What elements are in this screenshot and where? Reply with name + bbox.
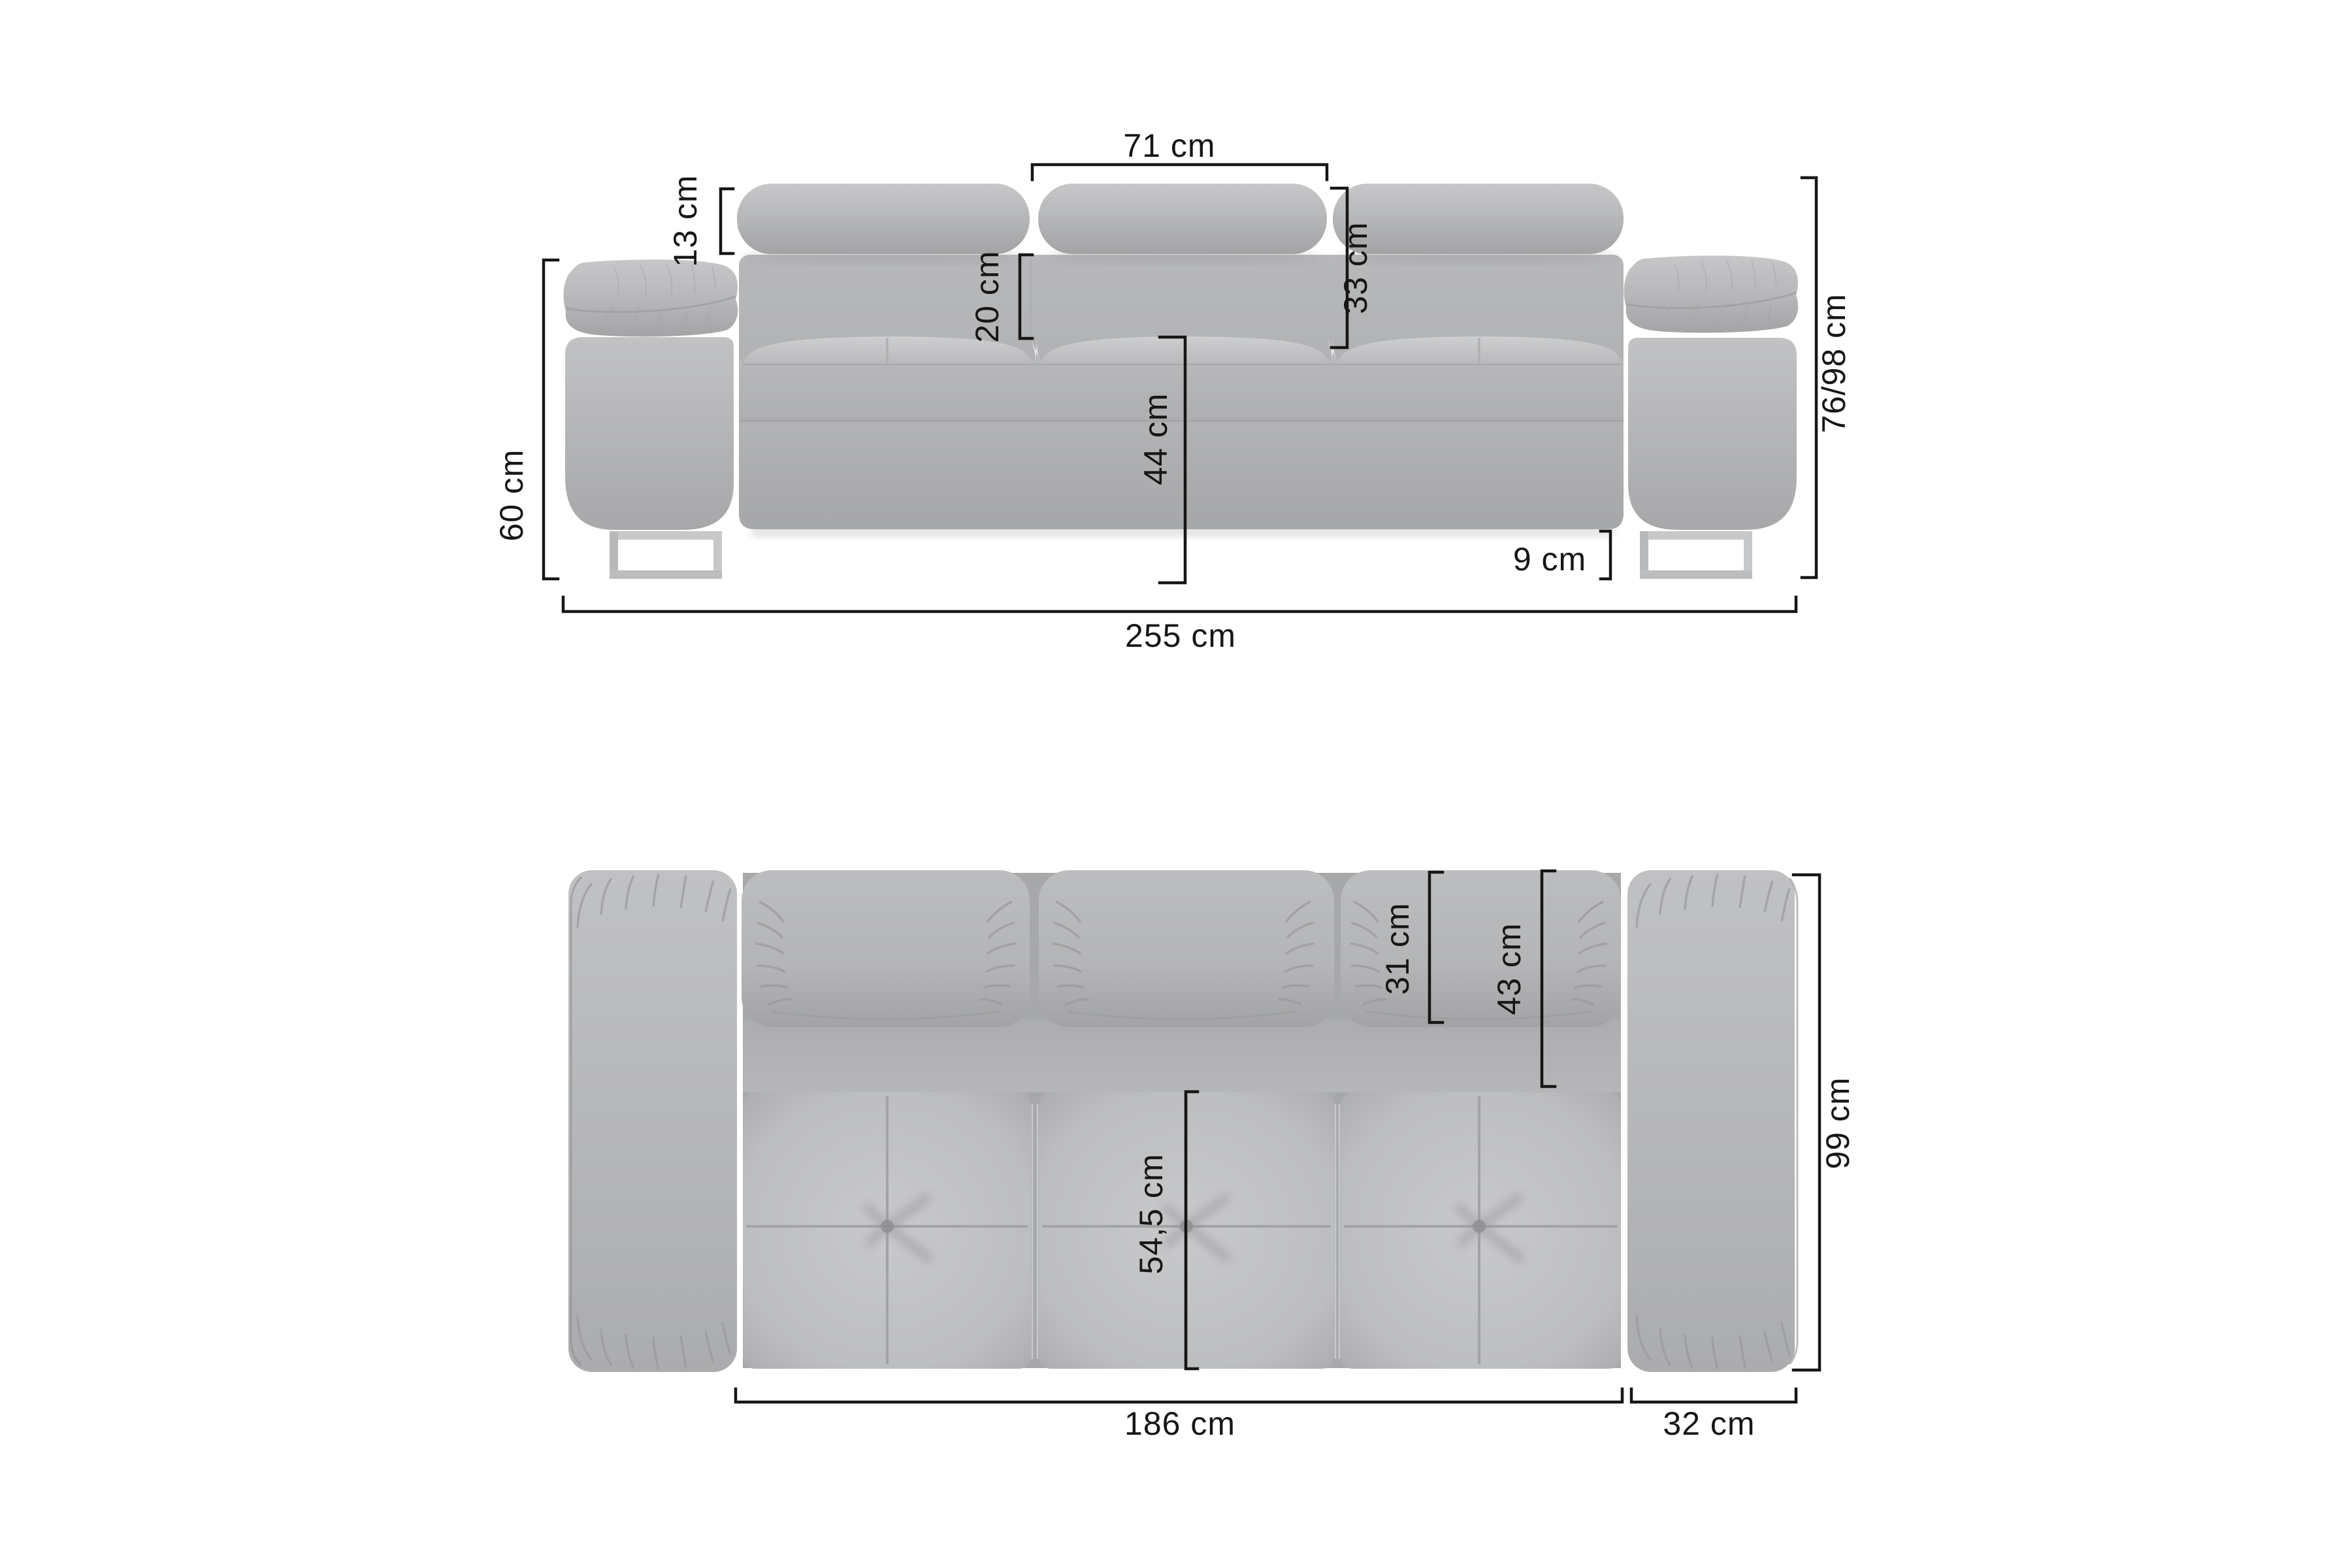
svg-text:99 cm: 99 cm: [1820, 1077, 1856, 1169]
svg-text:13 cm: 13 cm: [667, 174, 704, 267]
svg-text:186 cm: 186 cm: [1124, 1405, 1235, 1442]
svg-text:255 cm: 255 cm: [1125, 617, 1236, 654]
svg-text:60 cm: 60 cm: [493, 449, 530, 541]
svg-text:76/98 cm: 76/98 cm: [1816, 293, 1852, 433]
svg-text:43 cm: 43 cm: [1491, 923, 1527, 1015]
svg-text:33 cm: 33 cm: [1337, 221, 1374, 314]
svg-text:20 cm: 20 cm: [969, 250, 1005, 342]
svg-text:44 cm: 44 cm: [1137, 393, 1174, 485]
svg-text:32 cm: 32 cm: [1663, 1405, 1755, 1442]
svg-text:71 cm: 71 cm: [1123, 127, 1215, 164]
svg-text:31 cm: 31 cm: [1379, 902, 1416, 994]
svg-text:54,5 cm: 54,5 cm: [1133, 1154, 1169, 1275]
svg-text:9 cm: 9 cm: [1513, 541, 1586, 578]
